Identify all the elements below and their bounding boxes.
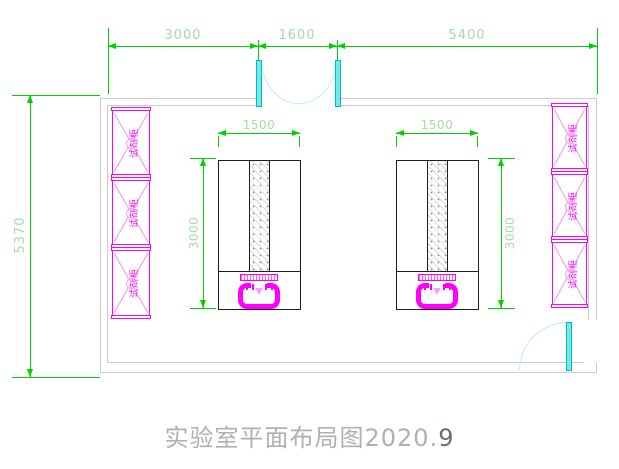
dim-arrow-icon [498,158,504,166]
sink-tooth-icon [246,284,248,290]
dim-leftwall-ext-top [12,95,100,96]
dim-tick [218,136,219,147]
bench-column-hatch [249,161,270,271]
sink-grate-icon [240,274,278,281]
sink-tooth-icon [424,284,426,290]
dim-bench1-width-label: 1500 [218,118,300,132]
reagent-cabinet: 试剂柜 [112,177,150,248]
lab-bench-left [218,160,301,310]
faucet-icon [433,288,441,295]
cabinet-label: 试剂柜 [568,186,580,226]
cabinet-endplate [111,247,151,251]
cabinet-label: 试剂柜 [129,123,141,163]
floorplan-canvas: 3000 1600 5400 5370 试剂柜 试剂柜 [0,0,619,469]
door-leaf [566,322,572,371]
cabinet-label: 试剂柜 [129,193,141,233]
dim-top-right-label: 5400 [427,29,507,43]
cabinet-group-right: 试剂柜 试剂柜 试剂柜 [552,103,587,308]
dim-arrow-icon [329,43,337,49]
sink-tooth-icon [449,284,451,290]
dim-top-line [108,46,598,47]
dim-arrow-icon [200,300,206,308]
dim-arrow-icon [27,95,33,103]
dim-tick [396,136,397,147]
dim-top-ext-left [108,28,109,94]
cabinet-endplate [111,315,151,319]
dim-top-mid-label: 1600 [257,29,337,43]
dim-leftwall-line [30,95,31,377]
cabinet-endplate [551,239,588,243]
cabinet-label: 试剂柜 [568,254,580,294]
dim-arrow-icon [258,43,266,49]
drawing-title-suffix: 9 [438,424,454,452]
sink-tooth-icon [443,284,445,290]
dim-arrow-icon [498,300,504,308]
dim-bench2-depth-label: 3000 [503,193,517,273]
sink-tooth-icon [271,284,273,290]
cabinet-endplate [551,103,588,107]
sink-tooth-icon [430,284,432,290]
sink-grate-icon [418,274,456,281]
dim-bench1-width-line [218,133,300,134]
reagent-cabinet: 试剂柜 [552,239,587,308]
drawing-title: 实验室平面布局图2020.9 [0,418,619,453]
dim-arrow-icon [200,158,206,166]
cabinet-endplate [111,107,151,111]
reagent-cabinet: 试剂柜 [112,247,150,319]
dim-leftwall-label: 5370 [14,195,28,275]
dim-leftwall-ext-bottom [12,377,100,378]
dim-bench1-depth-line [203,158,204,308]
door-leaf [335,60,341,107]
dim-bench2-width-line [396,133,478,134]
dim-arrow-icon [250,43,258,49]
lab-bench-right [396,160,479,310]
dim-tick [190,308,216,309]
cabinet-label: 试剂柜 [568,118,580,158]
dim-top-left-label: 3000 [143,29,223,43]
dim-arrow-icon [108,43,116,49]
sink-tooth-icon [265,284,267,290]
reagent-cabinet: 试剂柜 [552,171,587,240]
dim-arrow-icon [337,43,345,49]
dim-tick [477,136,478,147]
bench-divider [219,271,300,272]
dim-bench2-depth-line [501,158,502,308]
dim-arrow-icon [589,43,597,49]
dim-tick [488,308,515,309]
dim-tick [299,136,300,147]
bench-divider [397,271,478,272]
dim-bench2-width-label: 1500 [396,118,478,132]
faucet-icon [255,288,263,295]
cabinet-group-left: 试剂柜 试剂柜 试剂柜 [112,107,150,319]
dim-bench1-depth-label: 3000 [187,193,201,273]
sink-tooth-icon [252,284,254,290]
dim-top-ext-right [597,28,598,94]
reagent-cabinet: 试剂柜 [552,103,587,172]
drawing-title-text: 实验室平面布局图2020. [165,424,439,452]
bench-column-hatch [427,161,448,271]
cabinet-endplate [551,304,588,308]
cabinet-endplate [551,171,588,175]
cabinet-label: 试剂柜 [129,263,141,303]
cabinet-endplate [111,177,151,181]
door-leaf [256,60,262,107]
dim-arrow-icon [27,369,33,377]
wall-gap-right-door [584,320,599,363]
reagent-cabinet: 试剂柜 [112,107,150,178]
